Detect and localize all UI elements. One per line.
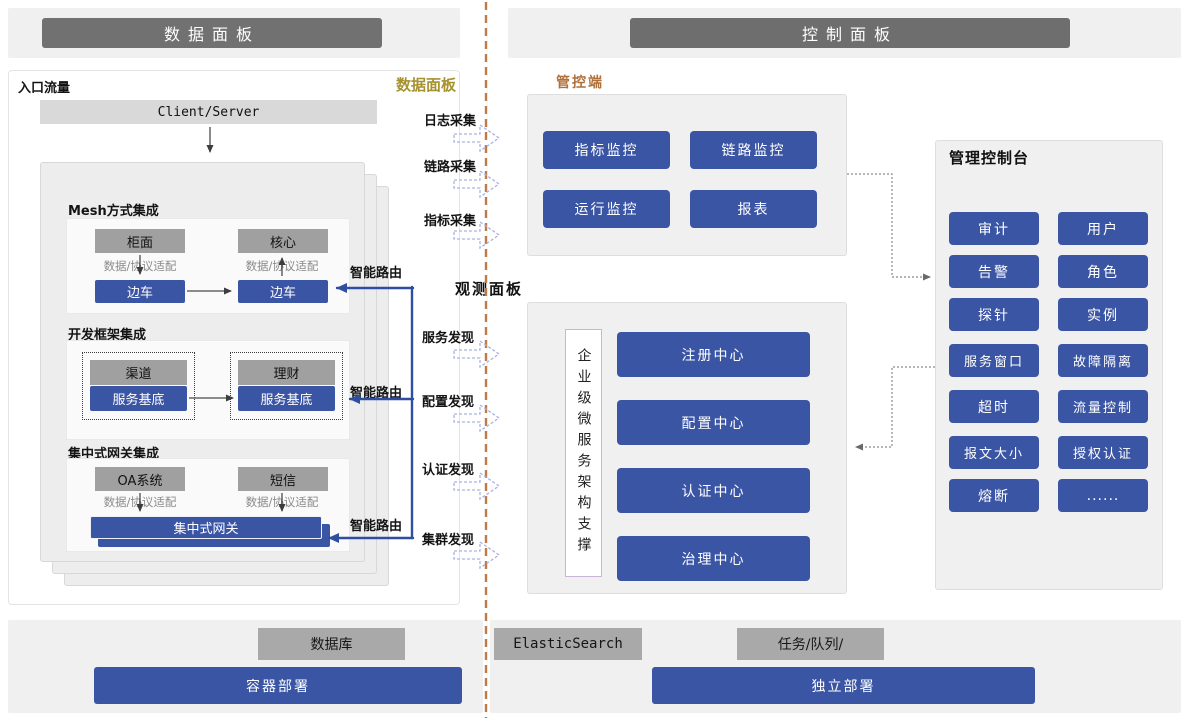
microservice-support-box: 企业级微服务架构支撑 bbox=[565, 329, 602, 577]
smart-route-label-3: 智能路由 bbox=[350, 515, 402, 534]
flow-label-config-discovery: 配置发现 bbox=[422, 391, 474, 410]
button-audit[interactable]: 审计 bbox=[949, 212, 1039, 245]
entry-traffic-label: 入口流量 bbox=[18, 77, 70, 96]
button-metric-monitor[interactable]: 指标监控 bbox=[543, 131, 670, 169]
smart-route-label-1: 智能路由 bbox=[350, 262, 402, 281]
button-config-center[interactable]: 配置中心 bbox=[617, 400, 810, 445]
node-service-base-right: 服务基底 bbox=[238, 386, 335, 411]
data-panel-corner-label: 数据面板 bbox=[356, 74, 456, 95]
button-auth-center[interactable]: 认证中心 bbox=[617, 468, 810, 513]
node-licai: 理财 bbox=[238, 360, 335, 385]
node-oa-system: OA系统 bbox=[95, 467, 185, 491]
button-trace-monitor[interactable]: 链路监控 bbox=[690, 131, 817, 169]
button-traffic-control[interactable]: 流量控制 bbox=[1058, 390, 1148, 423]
control-plane-panel bbox=[527, 94, 847, 256]
button-instance[interactable]: 实例 bbox=[1058, 298, 1148, 331]
architecture-diagram: 数据面板 控制面板 入口流量 数据面板 Client/Server Mesh方式… bbox=[0, 0, 1189, 720]
control-panel-header: 控制面板 bbox=[630, 18, 1070, 48]
button-standalone-deploy[interactable]: 独立部署 bbox=[652, 667, 1035, 704]
panel-dotted-connectors bbox=[847, 174, 935, 447]
button-runtime-monitor[interactable]: 运行监控 bbox=[543, 190, 670, 228]
client-server-node: Client/Server bbox=[40, 100, 377, 124]
adapter-label-mesh-right: 数据/协议适配 bbox=[218, 258, 346, 274]
observe-panel-label: 观测面板 bbox=[455, 278, 523, 299]
node-elasticsearch: ElasticSearch bbox=[494, 628, 642, 660]
microservice-support-label: 企业级微服务架构支撑 bbox=[574, 348, 594, 558]
section-mesh-title: Mesh方式集成 bbox=[68, 200, 159, 219]
button-circuit-break[interactable]: 熔断 bbox=[949, 479, 1039, 512]
dashed-block-arrows bbox=[454, 125, 499, 568]
smart-route-label-2: 智能路由 bbox=[350, 382, 402, 401]
flow-label-auth-discovery: 认证发现 bbox=[422, 459, 474, 478]
node-qudao: 渠道 bbox=[90, 360, 187, 385]
button-governance-center[interactable]: 治理中心 bbox=[617, 536, 810, 581]
adapter-label-gw-left: 数据/协议适配 bbox=[76, 494, 204, 510]
button-role[interactable]: 角色 bbox=[1058, 255, 1148, 288]
button-auth-cert[interactable]: 授权认证 bbox=[1058, 436, 1148, 469]
adapter-label-mesh-left: 数据/协议适配 bbox=[76, 258, 204, 274]
button-more[interactable]: ...... bbox=[1058, 479, 1148, 512]
control-plane-label: 管控端 bbox=[556, 72, 604, 92]
node-service-base-left: 服务基底 bbox=[90, 386, 187, 411]
node-hexin: 核心 bbox=[238, 229, 328, 253]
node-gateway: 集中式网关 bbox=[90, 516, 322, 539]
button-registry-center[interactable]: 注册中心 bbox=[617, 332, 810, 377]
node-guimian: 柜面 bbox=[95, 229, 185, 253]
flow-label-metric-collect: 指标采集 bbox=[424, 210, 476, 229]
flow-label-log-collect: 日志采集 bbox=[424, 110, 476, 129]
node-database: 数据库 bbox=[258, 628, 405, 660]
node-sidecar-right: 边车 bbox=[238, 280, 328, 303]
button-message-size[interactable]: 报文大小 bbox=[949, 436, 1039, 469]
adapter-label-gw-right: 数据/协议适配 bbox=[218, 494, 346, 510]
button-container-deploy[interactable]: 容器部署 bbox=[94, 667, 462, 704]
button-probe[interactable]: 探针 bbox=[949, 298, 1039, 331]
admin-console-title: 管理控制台 bbox=[949, 147, 1029, 168]
node-sidecar-left: 边车 bbox=[95, 280, 185, 303]
flow-label-service-discovery: 服务发现 bbox=[422, 327, 474, 346]
data-panel-header: 数据面板 bbox=[42, 18, 382, 48]
flow-label-trace-collect: 链路采集 bbox=[424, 156, 476, 175]
node-sms: 短信 bbox=[238, 467, 328, 491]
flow-label-cluster-discovery: 集群发现 bbox=[422, 529, 474, 548]
button-service-window[interactable]: 服务窗口 bbox=[949, 344, 1039, 377]
button-timeout[interactable]: 超时 bbox=[949, 390, 1039, 423]
button-report[interactable]: 报表 bbox=[690, 190, 817, 228]
button-fault-isolation[interactable]: 故障隔离 bbox=[1058, 344, 1148, 377]
node-task-queue: 任务/队列/ bbox=[737, 628, 884, 660]
button-user[interactable]: 用户 bbox=[1058, 212, 1148, 245]
button-alert[interactable]: 告警 bbox=[949, 255, 1039, 288]
